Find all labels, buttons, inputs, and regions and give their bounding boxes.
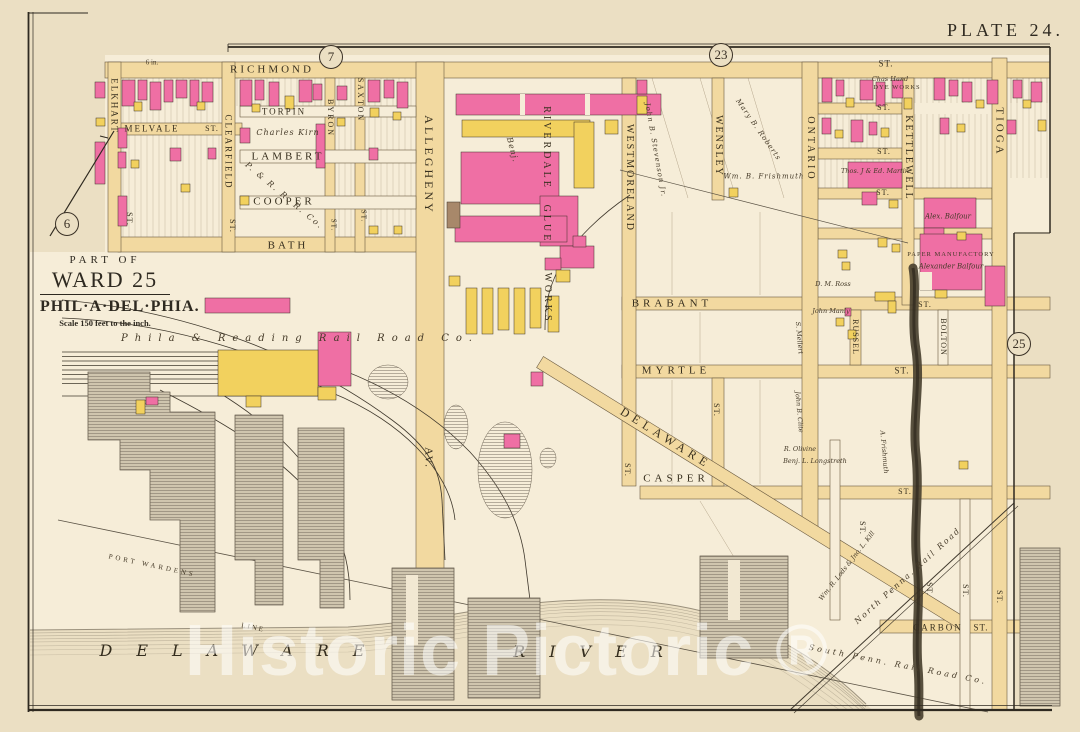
title-scale: Scale 150 feet to the inch.: [40, 318, 170, 328]
title-ward: WARD 25: [40, 267, 170, 295]
plate-ref-6: 6: [55, 212, 79, 236]
atlas-plate-page: RICHMONDST.MELVALEST.TORPINLAMBERTCOOPER…: [0, 0, 1080, 732]
plate-ref-7: 7: [319, 45, 343, 69]
map-canvas: [0, 0, 1080, 732]
plate-title: PLATE 24.: [947, 20, 1064, 41]
title-city: PHIL·A·DEL·PHIA.: [40, 298, 170, 316]
plate-ref-25: 25: [1007, 332, 1031, 356]
map-title-block: PART OF WARD 25 PHIL·A·DEL·PHIA. Scale 1…: [40, 254, 170, 328]
title-part-of: PART OF: [40, 254, 170, 266]
plate-ref-23: 23: [709, 43, 733, 67]
